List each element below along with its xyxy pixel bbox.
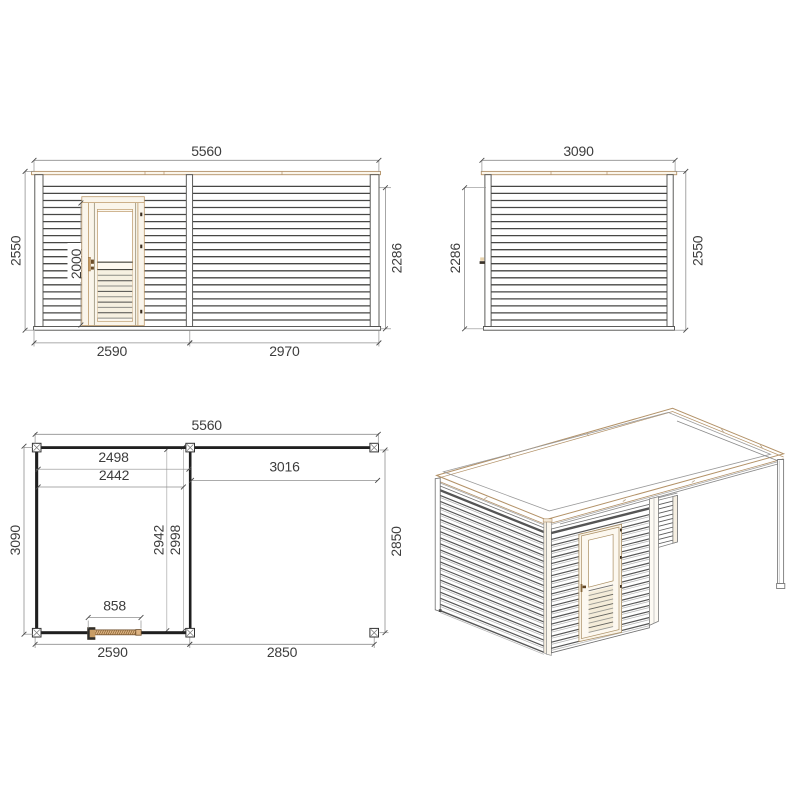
- svg-text:2850: 2850: [267, 644, 298, 660]
- svg-text:2550: 2550: [7, 235, 23, 266]
- svg-text:2590: 2590: [97, 343, 128, 359]
- svg-text:5560: 5560: [192, 417, 223, 433]
- svg-text:2000: 2000: [68, 248, 84, 279]
- svg-text:5560: 5560: [191, 143, 222, 159]
- svg-text:2942: 2942: [150, 525, 166, 556]
- svg-text:2970: 2970: [269, 343, 300, 359]
- svg-text:858: 858: [103, 598, 126, 614]
- svg-text:3090: 3090: [563, 143, 594, 159]
- svg-text:2550: 2550: [690, 235, 706, 266]
- svg-text:2590: 2590: [97, 644, 128, 660]
- svg-text:3090: 3090: [7, 525, 23, 556]
- svg-text:2498: 2498: [98, 449, 129, 465]
- svg-text:3016: 3016: [269, 458, 300, 474]
- svg-text:2442: 2442: [99, 467, 130, 483]
- svg-text:2850: 2850: [388, 526, 404, 557]
- svg-text:2286: 2286: [447, 243, 463, 274]
- svg-text:2998: 2998: [167, 525, 183, 556]
- svg-text:2286: 2286: [389, 243, 405, 274]
